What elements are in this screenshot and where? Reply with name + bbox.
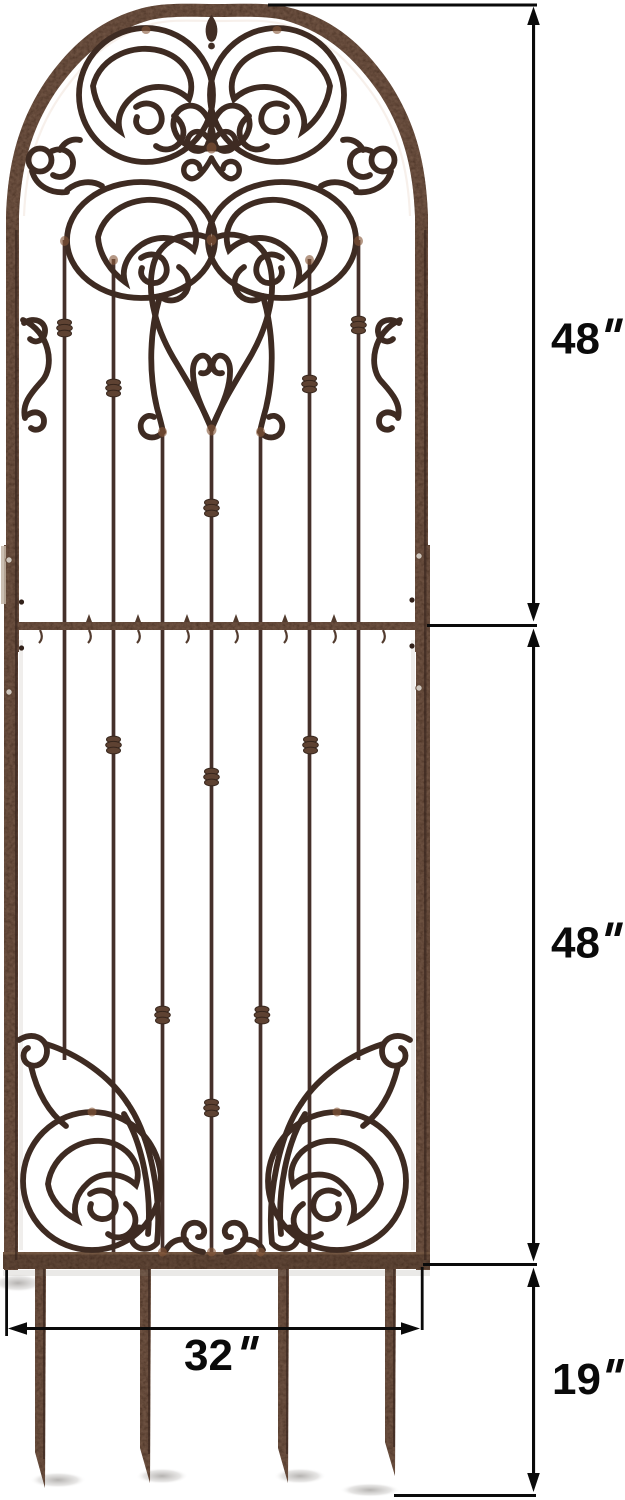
svg-text:48: 48 — [551, 315, 600, 364]
svg-text:48: 48 — [551, 919, 600, 968]
svg-text:32: 32 — [184, 1331, 233, 1380]
svg-text:19: 19 — [552, 1355, 601, 1404]
